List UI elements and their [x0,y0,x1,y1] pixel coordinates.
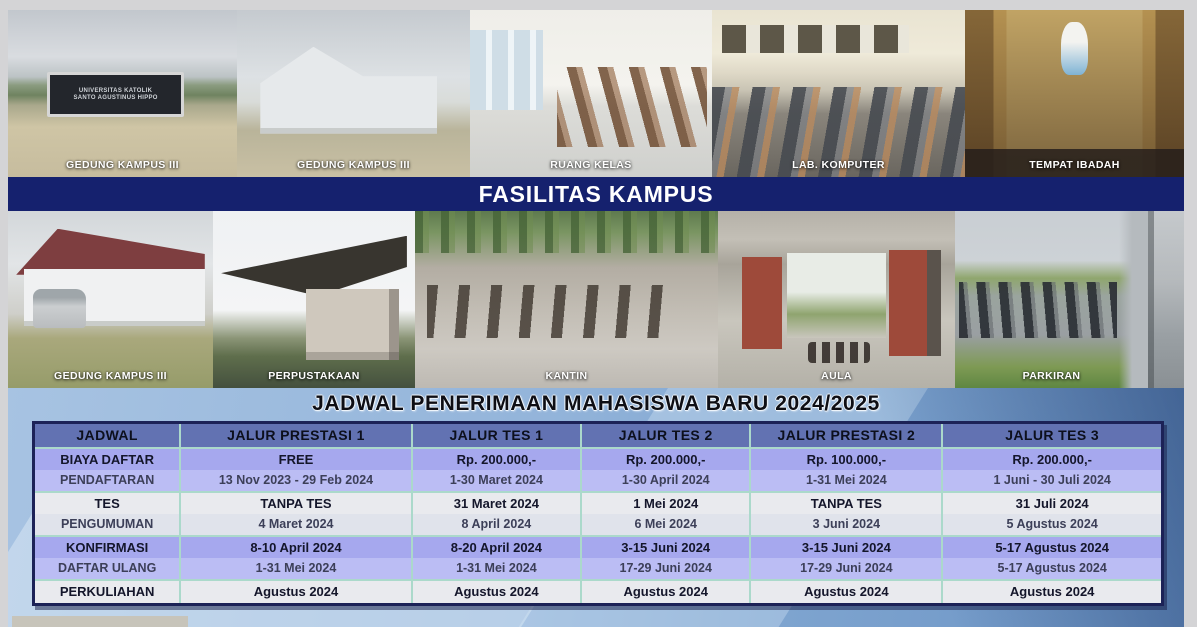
schedule-cell: 3-15 Juni 202417-29 Juni 2024 [750,536,942,580]
cell-line2: 1-30 April 2024 [584,470,747,490]
car-shape [33,289,86,328]
photo-gedung-kampus-3-building: GEDUNG KAMPUS III [237,10,470,177]
cell-line2: 4 Maret 2024 [183,514,408,534]
cell-line2: 1-31 Mei 2024 [753,470,939,490]
statue-shape [1061,22,1087,75]
photo-label: KANTIN [415,370,718,382]
cell-line1: Agustus 2024 [945,582,1159,602]
schedule-cell: Agustus 2024 [180,580,411,605]
photo-parkiran: PARKIRAN [955,211,1148,388]
schedule-cell: 1 Mei 20246 Mei 2024 [581,492,750,536]
schedule-row: TESPENGUMUMANTANPA TES4 Maret 202431 Mar… [34,492,1163,536]
photo-label: TEMPAT IBADAH [965,159,1184,171]
vines-shape [415,211,718,253]
cell-line2: 6 Mei 2024 [584,514,747,534]
cell-line1: Agustus 2024 [415,582,578,602]
schedule-cell: Agustus 2024 [750,580,942,605]
column-header: JALUR PRESTASI 1 [180,423,411,448]
cell-line2: 13 Nov 2023 - 29 Feb 2024 [183,470,408,490]
schedule-cell: Rp. 100.000,-1-31 Mei 2024 [750,448,942,492]
hall-opening-shape [787,253,887,338]
cell-line1: Rp. 200.000,- [415,450,578,470]
cell-line2: 8 April 2024 [415,514,578,534]
building-shape [306,289,399,360]
column-header: JALUR PRESTASI 2 [750,423,942,448]
schedule-cell: Rp. 200.000,-1-30 Maret 2024 [412,448,581,492]
cell-line1: Rp. 200.000,- [945,450,1159,470]
schedule-table: JADWALJALUR PRESTASI 1JALUR TES 1JALUR T… [32,421,1164,606]
photo-gedung-kampus-3-roadside: GEDUNG KAMPUS III [8,211,213,388]
cell-line1: FREE [183,450,408,470]
cell-line1: 31 Juli 2024 [945,494,1159,514]
schedule-row: PERKULIAHANAgustus 2024Agustus 2024Agust… [34,580,1163,605]
schedule-cell: Agustus 2024 [942,580,1162,605]
schedule-row: KONFIRMASIDAFTAR ULANG8-10 April 20241-3… [34,536,1163,580]
row-label-cell: PERKULIAHAN [34,580,181,605]
schedule-cell: 31 Maret 20248 April 2024 [412,492,581,536]
cell-line2: PENGUMUMAN [37,514,177,534]
photo-label: GEDUNG KAMPUS III [237,159,470,171]
cell-line2: 1-31 Mei 2024 [415,558,578,578]
photo-label: GEDUNG KAMPUS III [8,370,213,382]
photo-aula: AULA [718,211,955,388]
schedule-cell: 8-10 April 20241-31 Mei 2024 [180,536,411,580]
row-label-cell: KONFIRMASIDAFTAR ULANG [34,536,181,580]
cell-line2: 5 Agustus 2024 [945,514,1159,534]
schedule-title: JADWAL PENERIMAAN MAHASISWA BARU 2024/20… [8,392,1184,416]
photo-label: GEDUNG KAMPUS III [8,159,237,171]
photo-label: PERPUSTAKAAN [213,370,415,382]
brick-wall-shape [742,257,782,349]
cell-line1: 8-10 April 2024 [183,538,408,558]
photo-tempat-ibadah: TEMPAT IBADAH [965,10,1184,177]
photo-label: LAB. KOMPUTER [712,159,965,171]
cell-line1: Agustus 2024 [753,582,939,602]
column-header: JALUR TES 2 [581,423,750,448]
schedule-cell: FREE13 Nov 2023 - 29 Feb 2024 [180,448,411,492]
schedule-cell: Rp. 200.000,-1-30 April 2024 [581,448,750,492]
campus-sign: UNIVERSITAS KATOLIK SANTO AGUSTINUS HIPP… [47,72,184,117]
campus-sign-line1: UNIVERSITAS KATOLIK [79,88,152,94]
cell-line1: TANPA TES [183,494,408,514]
cell-line2: PENDAFTARAN [37,470,177,490]
cell-line1: PERKULIAHAN [37,582,177,602]
schedule-cell: 5-17 Agustus 20245-17 Agustus 2024 [942,536,1162,580]
photo-corridor-partial [1148,211,1184,388]
cell-line2: DAFTAR ULANG [37,558,177,578]
photo-gedung-kampus-3-sign: UNIVERSITAS KATOLIK SANTO AGUSTINUS HIPP… [8,10,237,177]
column-header: JADWAL [34,423,181,448]
schedule-cell: 31 Juli 20245 Agustus 2024 [942,492,1162,536]
roof-wing-shape [221,236,407,296]
cell-line2: 1-31 Mei 2024 [183,558,408,578]
cell-line2: 3 Juni 2024 [753,514,939,534]
schedule-section: JADWAL PENERIMAAN MAHASISWA BARU 2024/20… [8,388,1184,627]
window-shape [470,30,543,110]
schedule-table-body: BIAYA DAFTARPENDAFTARANFREE13 Nov 2023 -… [34,448,1163,605]
roof-shape [16,229,205,275]
photo-label: AULA [718,370,955,382]
cell-line2: 1-30 Maret 2024 [415,470,578,490]
cell-line1: TANPA TES [753,494,939,514]
building-edge-shape [1119,211,1148,388]
cell-line1: 31 Maret 2024 [415,494,578,514]
column-header: JALUR TES 1 [412,423,581,448]
cell-line1: 5-17 Agustus 2024 [945,538,1159,558]
schedule-cell: Rp. 200.000,-1 Juni - 30 Juli 2024 [942,448,1162,492]
row-label-cell: TESPENGUMUMAN [34,492,181,536]
cell-line1: BIAYA DAFTAR [37,450,177,470]
schedule-cell: TANPA TES3 Juni 2024 [750,492,942,536]
photo-perpustakaan: PERPUSTAKAAN [213,211,415,388]
brick-wall-shape [889,250,941,356]
tables-shape [427,285,669,338]
cell-line1: TES [37,494,177,514]
schedule-cell: 8-20 April 20241-31 Mei 2024 [412,536,581,580]
cell-line1: Rp. 100.000,- [753,450,939,470]
cell-line2: 5-17 Agustus 2024 [945,558,1159,578]
window-shape [722,25,909,53]
schedule-row: BIAYA DAFTARPENDAFTARANFREE13 Nov 2023 -… [34,448,1163,492]
campus-sign-line2: SANTO AGUSTINUS HIPPO [73,95,157,101]
cell-line1: 3-15 Juni 2024 [584,538,747,558]
column-header: JALUR TES 3 [942,423,1162,448]
cell-line1: KONFIRMASI [37,538,177,558]
cell-line2: 1 Juni - 30 Juli 2024 [945,470,1159,490]
photo-label: PARKIRAN [955,370,1148,382]
cell-line1: 1 Mei 2024 [584,494,747,514]
photo-label: RUANG KELAS [470,159,712,171]
cell-line1: 3-15 Juni 2024 [753,538,939,558]
facilities-banner: FASILITAS KAMPUS [8,177,1184,211]
cell-line1: Agustus 2024 [584,582,747,602]
motorbikes-shape [959,282,1117,339]
photo-kantin: KANTIN [415,211,718,388]
facilities-banner-label: FASILITAS KAMPUS [479,181,714,208]
cell-line1: Rp. 200.000,- [584,450,747,470]
schedule-cell: 3-15 Juni 202417-29 Juni 2024 [581,536,750,580]
schedule-cell: Agustus 2024 [581,580,750,605]
schedule-table-header: JADWALJALUR PRESTASI 1JALUR TES 1JALUR T… [34,423,1163,448]
chairs-shape [557,67,707,147]
cell-line1: Agustus 2024 [183,582,408,602]
campus-flyer: { "page": { "background": "#d4d4d6" }, "… [0,0,1197,627]
row-label-cell: BIAYA DAFTARPENDAFTARAN [34,448,181,492]
photo-lab-komputer: LAB. KOMPUTER [712,10,965,177]
bottom-left-block [12,616,188,627]
schedule-cell: Agustus 2024 [412,580,581,605]
building-shape [260,47,437,134]
cell-line2: 17-29 Juni 2024 [753,558,939,578]
people-shape [808,342,870,363]
schedule-cell: TANPA TES4 Maret 2024 [180,492,411,536]
cell-line2: 17-29 Juni 2024 [584,558,747,578]
cell-line1: 8-20 April 2024 [415,538,578,558]
photo-ruang-kelas: RUANG KELAS [470,10,712,177]
